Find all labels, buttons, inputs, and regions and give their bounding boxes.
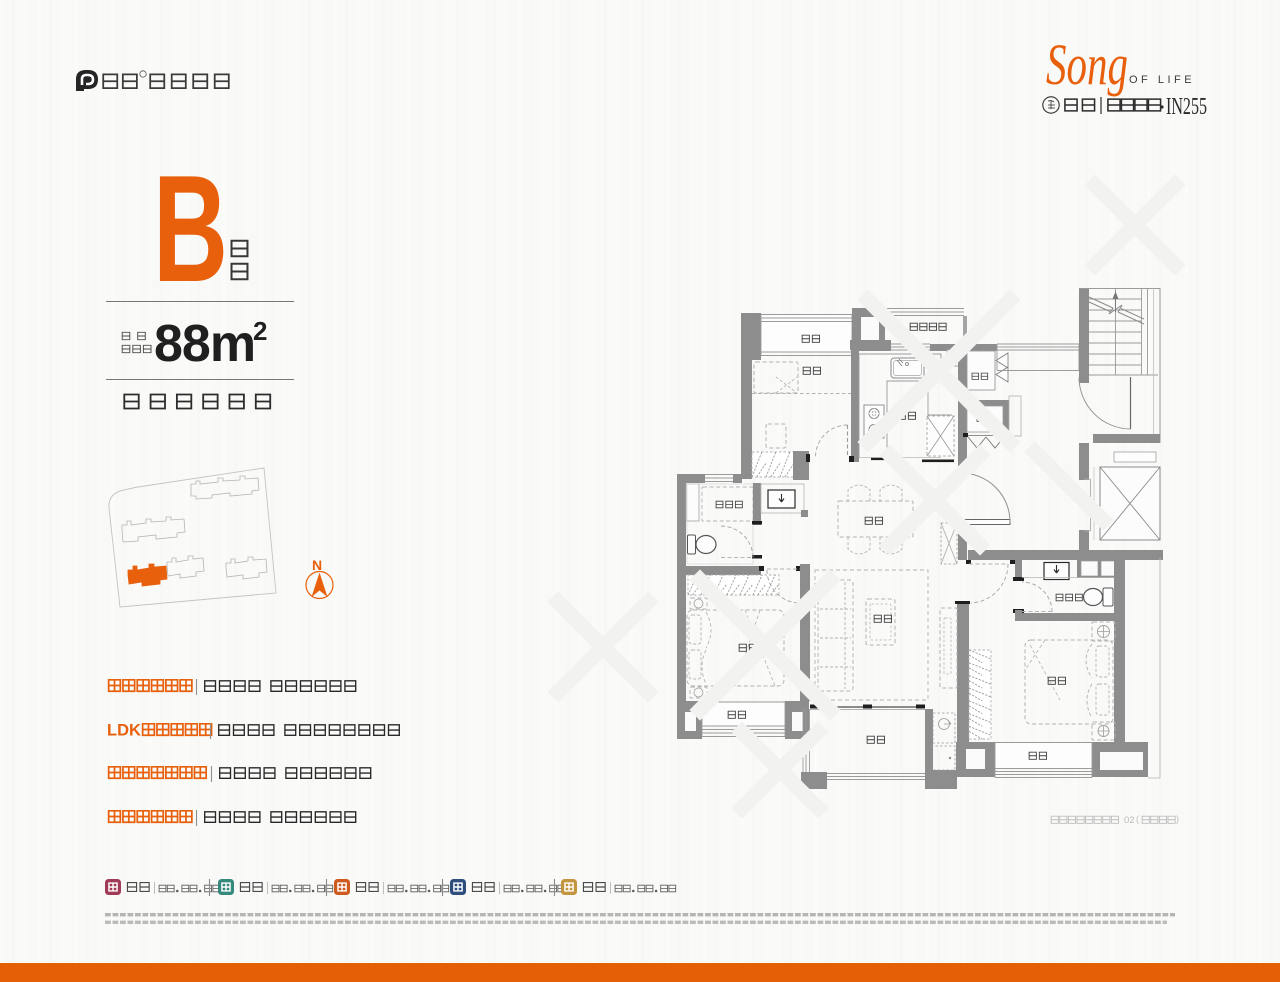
svg-text:Song: Song bbox=[1046, 32, 1128, 97]
svg-text:(: ( bbox=[1136, 814, 1139, 824]
svg-text:2: 2 bbox=[253, 316, 267, 346]
svg-text:): ) bbox=[1176, 814, 1179, 824]
svg-text:N: N bbox=[312, 557, 322, 573]
svg-text:02: 02 bbox=[1124, 815, 1135, 826]
svg-text:LDK: LDK bbox=[107, 722, 141, 740]
svg-text:OF LIFE: OF LIFE bbox=[1129, 74, 1195, 86]
svg-text:IN255: IN255 bbox=[1166, 94, 1207, 120]
svg-text:88m: 88m bbox=[154, 315, 255, 373]
svg-text:B: B bbox=[153, 144, 228, 314]
